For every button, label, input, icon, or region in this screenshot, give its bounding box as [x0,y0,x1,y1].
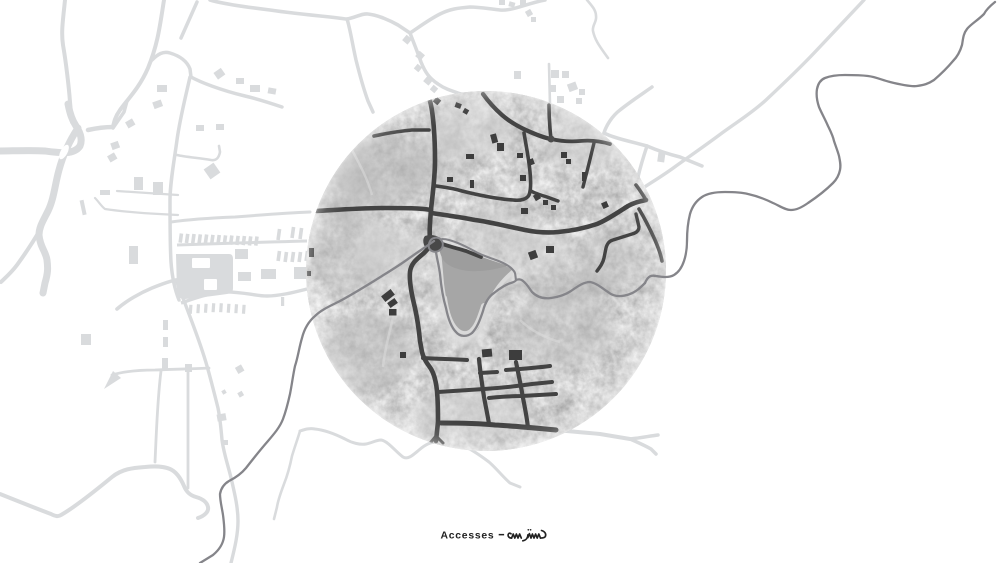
svg-text:Accesses: Accesses [441,530,495,541]
